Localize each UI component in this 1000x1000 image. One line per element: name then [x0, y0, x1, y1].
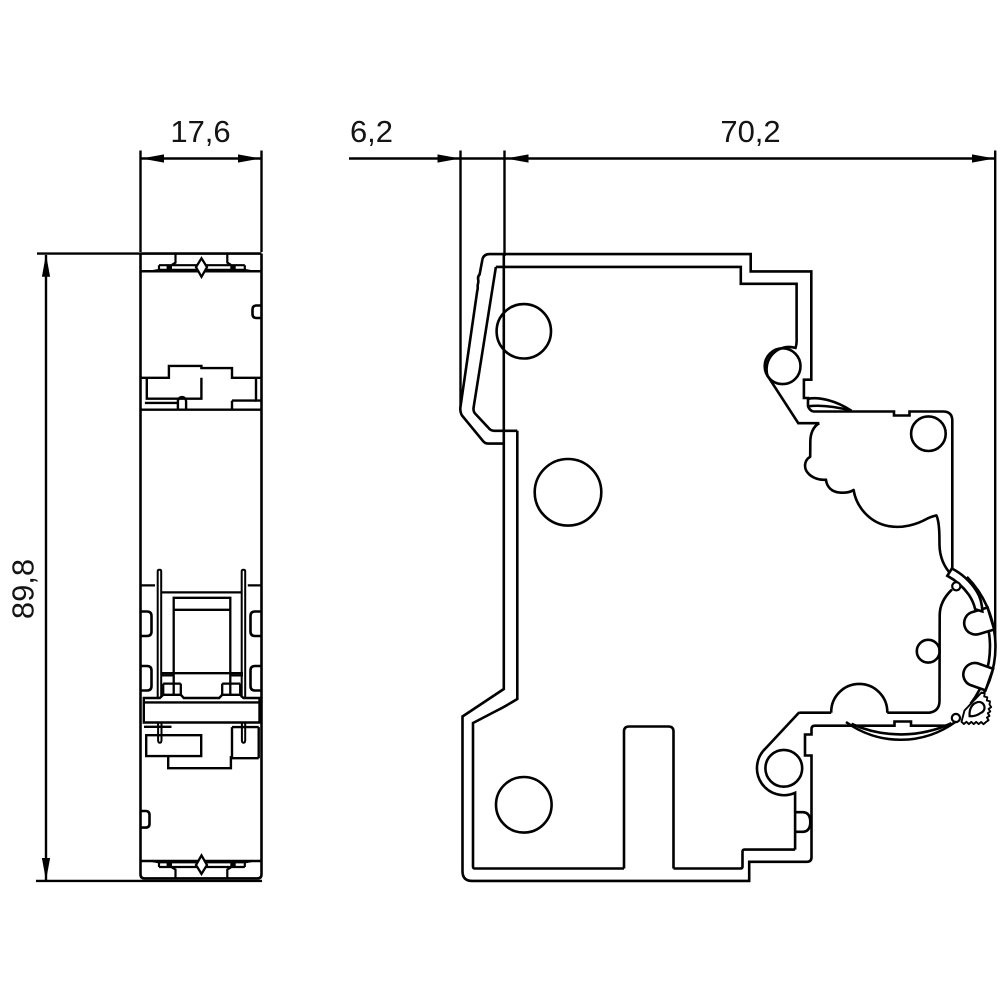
svg-text:6,2: 6,2: [350, 114, 393, 149]
svg-text:70,2: 70,2: [720, 114, 780, 149]
svg-text:17,6: 17,6: [170, 114, 230, 149]
svg-text:89,8: 89,8: [6, 559, 41, 619]
